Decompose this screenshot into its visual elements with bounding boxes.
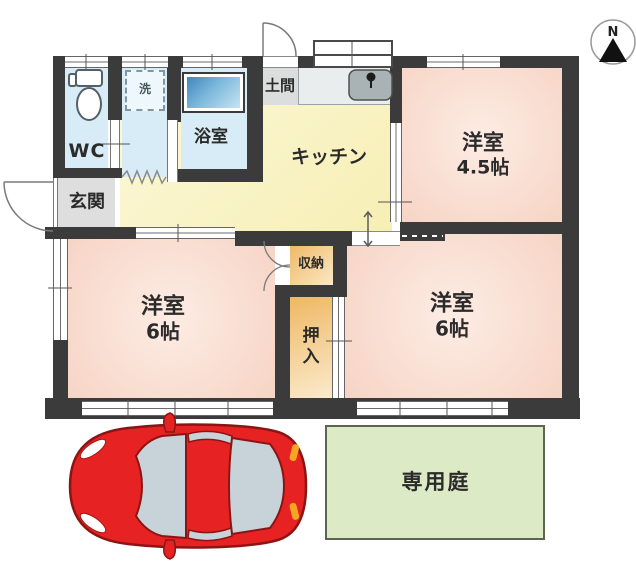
window bbox=[53, 239, 68, 340]
wall bbox=[263, 56, 579, 68]
wall bbox=[108, 56, 122, 120]
north-arrow-icon bbox=[599, 38, 627, 62]
wall bbox=[53, 56, 65, 178]
car-taillight bbox=[289, 502, 300, 520]
car-rear-glass bbox=[229, 438, 284, 534]
wc-door bbox=[110, 120, 120, 168]
kitchen-bay-window bbox=[313, 40, 393, 68]
car-windshield bbox=[136, 434, 186, 538]
label-western-6-left: 洋室 6帖 bbox=[141, 295, 185, 346]
bathroom-door bbox=[167, 120, 178, 182]
label-western-6-left-name: 洋室 bbox=[141, 295, 185, 320]
car-side-glass bbox=[188, 431, 232, 444]
wall bbox=[275, 297, 290, 398]
wall bbox=[167, 56, 181, 122]
label-doma: 土間 bbox=[265, 77, 295, 94]
label-western-6-right-size: 6帖 bbox=[435, 317, 469, 341]
wall bbox=[53, 168, 122, 178]
oshiire-sliding-door bbox=[332, 297, 345, 398]
car-side-glass bbox=[188, 528, 232, 541]
label-entrance: 玄関 bbox=[69, 193, 105, 214]
label-western-6-right: 洋室 6帖 bbox=[430, 292, 474, 343]
floor-plan: WC 洗 浴室 土間 キッチン 玄関 洋室 4.5帖 洋室 6帖 洋室 6帖 収… bbox=[0, 0, 636, 564]
wall bbox=[562, 56, 579, 419]
wall bbox=[247, 56, 263, 180]
door-opening bbox=[352, 231, 400, 246]
car-headlight bbox=[78, 510, 109, 536]
window bbox=[427, 56, 500, 68]
window bbox=[65, 56, 108, 68]
wall bbox=[53, 340, 68, 398]
label-kitchen: キッチン bbox=[291, 147, 367, 169]
label-storage: 収納 bbox=[298, 258, 324, 273]
window bbox=[183, 56, 242, 68]
back-door-icon bbox=[263, 23, 296, 56]
wall bbox=[275, 285, 347, 297]
label-bath: 浴室 bbox=[194, 128, 228, 148]
door-opening bbox=[263, 56, 298, 68]
car-headlight bbox=[78, 436, 109, 462]
entrance-door-icon bbox=[4, 182, 53, 231]
compass-label: N bbox=[608, 25, 619, 40]
window bbox=[122, 56, 168, 68]
compass-icon: N bbox=[591, 20, 635, 64]
label-western-45-size: 4.5帖 bbox=[457, 157, 510, 179]
car-mirror-icon bbox=[164, 540, 176, 559]
window bbox=[82, 401, 273, 416]
car-icon bbox=[70, 413, 306, 559]
label-western-6-left-size: 6帖 bbox=[146, 320, 180, 344]
label-oshiire: 押入 bbox=[302, 326, 321, 369]
label-wc: WC bbox=[69, 141, 106, 163]
bathtub-icon bbox=[182, 72, 245, 113]
label-western-45: 洋室 4.5帖 bbox=[457, 131, 510, 180]
kitchen-counter bbox=[298, 64, 392, 105]
wall bbox=[45, 227, 136, 239]
sliding-door bbox=[136, 227, 235, 239]
sliding-door bbox=[390, 123, 402, 222]
label-western-45-name: 洋室 bbox=[462, 131, 504, 155]
window bbox=[357, 401, 508, 416]
label-western-6-right-name: 洋室 bbox=[430, 292, 474, 317]
label-garden: 専用庭 bbox=[402, 470, 471, 494]
car-taillight bbox=[289, 444, 300, 462]
label-laundry: 洗 bbox=[139, 83, 151, 97]
entrance-threshold bbox=[53, 178, 58, 227]
